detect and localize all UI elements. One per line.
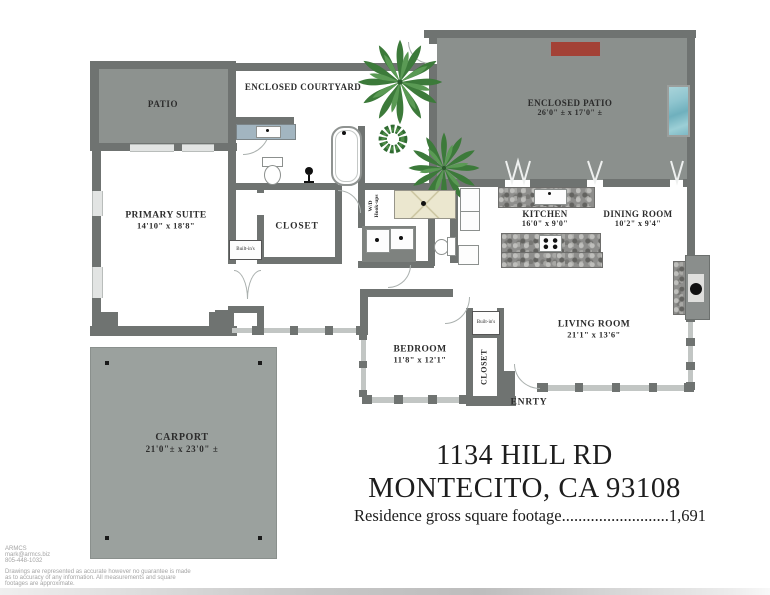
- window-mullion: [325, 326, 333, 335]
- window-mullion: [649, 383, 657, 392]
- window: [92, 191, 103, 216]
- built-ins-bedroom: Built-in's: [472, 311, 500, 335]
- room-name: DINING ROOM: [603, 209, 672, 219]
- window-sill: [363, 397, 467, 403]
- toilet: [447, 237, 456, 256]
- disclaimer-line-3: footages are approximate.: [5, 581, 191, 587]
- entry-label: ENRTY: [511, 398, 548, 409]
- laundry-label: W/D Hook-ups: [368, 195, 380, 218]
- room-dims: 21'1" x 13'6": [558, 331, 630, 341]
- window: [130, 144, 174, 152]
- room-dims: 14'10" x 18'8": [125, 222, 206, 232]
- room-label-primary-suite: PRIMARY SUITE 14'10" x 18'8": [125, 211, 206, 232]
- window-mullion: [428, 395, 437, 404]
- room-label-enclosed-courtyard: ENCLOSED COURTYARD: [245, 82, 361, 92]
- square-footage-line: Residence gross square footage..........…: [354, 506, 699, 526]
- bifold-door-icon: [670, 161, 684, 183]
- floor-lamp-icon: [305, 167, 313, 175]
- wall: [228, 61, 236, 264]
- room-label-patio: PATIO: [148, 99, 178, 109]
- wall: [90, 61, 236, 69]
- wall: [687, 183, 695, 259]
- door-arc: [234, 270, 248, 299]
- faucet-icon: [548, 192, 551, 195]
- built-ins-label: Built-in's: [477, 320, 495, 326]
- wall: [92, 312, 118, 327]
- shower-drain: [421, 201, 426, 206]
- vanity-sink: [256, 126, 281, 138]
- page-edge-shadow: [0, 588, 770, 595]
- wall: [360, 289, 368, 335]
- room-dims: 10'2" x 9'4": [603, 220, 672, 229]
- room-label-bedroom: BEDROOM 11'8" x 12'1": [394, 345, 447, 366]
- bbq-grill: [549, 40, 602, 58]
- room-label-primary-closet: CLOSET: [275, 222, 318, 233]
- bifold-door-icon: [505, 161, 531, 183]
- window-mullion: [686, 338, 695, 346]
- carport-post: [258, 361, 262, 365]
- room-name: ENCLOSED PATIO: [528, 98, 613, 108]
- kitchen-cabinet: [458, 245, 479, 265]
- window-mullion: [362, 395, 372, 404]
- toilet-bowl: [264, 165, 281, 185]
- address-line-2: MONTECITO, CA 93108: [352, 472, 697, 505]
- water-feature: [667, 85, 690, 137]
- address-line-1: 1134 HILL RD: [352, 440, 697, 472]
- built-ins-label: Built-in's: [236, 247, 254, 253]
- room-label-dining-room: DINING ROOM 10'2" x 9'4": [603, 209, 672, 229]
- window: [92, 267, 103, 298]
- stove: [539, 235, 562, 252]
- wall: [92, 143, 101, 334]
- shrub-plant-icon: [377, 123, 409, 155]
- bathtub-basin: [335, 130, 358, 182]
- wall: [232, 117, 294, 124]
- door-arc: [247, 270, 261, 299]
- window-mullion: [612, 383, 620, 392]
- door-arc: [514, 364, 540, 389]
- bifold-door-icon: [587, 161, 603, 183]
- window-mullion: [252, 326, 264, 335]
- wall: [424, 30, 696, 38]
- wall: [603, 179, 670, 187]
- room-dims: 21'0"± x 23'0" ±: [146, 444, 219, 454]
- room-label-carport: CARPORT 21'0"± x 23'0" ±: [146, 432, 219, 454]
- wall: [363, 289, 453, 297]
- carport-post: [258, 536, 262, 540]
- washer-knob: [375, 238, 379, 242]
- door-opening: [257, 193, 264, 215]
- window-mullion: [290, 326, 298, 335]
- window-mullion: [359, 361, 367, 368]
- wall: [232, 183, 338, 190]
- room-dims: 16'0" x 9'0": [522, 220, 568, 229]
- window-mullion: [686, 362, 695, 370]
- footage-label: Residence gross square footage: [354, 506, 562, 525]
- door-arc: [388, 265, 411, 288]
- window-mullion: [394, 395, 403, 404]
- built-ins-primary: Built-in's: [229, 240, 262, 260]
- kitchen-cabinet: [460, 211, 480, 231]
- room-dims: 11'8" x 12'1": [394, 356, 447, 366]
- window-sill: [688, 316, 693, 388]
- wall: [257, 257, 342, 264]
- wd-line2: Hook-ups: [374, 195, 380, 218]
- floor-plan: Built-in's Built-in's PATIO ENCLOSED COU…: [0, 0, 770, 595]
- room-label-enclosed-patio: ENCLOSED PATIO 26'0" ± x 17'0" ±: [528, 98, 613, 118]
- wall: [90, 61, 99, 149]
- footage-dots: ..........................: [562, 506, 669, 525]
- window-mullion: [359, 333, 367, 340]
- room-name: CARPORT: [146, 432, 219, 444]
- faucet-icon: [266, 129, 269, 132]
- footage-value: 1,691: [669, 506, 706, 525]
- firebox-icon: [690, 283, 702, 295]
- window-mullion: [575, 383, 583, 392]
- room-label-kitchen: KITCHEN 16'0" x 9'0": [522, 209, 568, 229]
- tub-faucet-icon: [342, 131, 346, 135]
- dryer-knob: [399, 236, 403, 240]
- room-dims: 26'0" ± x 17'0" ±: [528, 109, 613, 118]
- carport-post: [105, 361, 109, 365]
- window-mullion: [686, 382, 695, 390]
- kitchen-island-lower: [501, 252, 603, 268]
- palm-plant-icon: [356, 38, 444, 126]
- floor-lamp-base: [304, 181, 314, 183]
- room-label-living-room: LIVING ROOM 21'1" x 13'6": [558, 320, 630, 341]
- room-name: KITCHEN: [522, 209, 568, 219]
- address-block: 1134 HILL RD MONTECITO, CA 93108: [352, 440, 697, 505]
- refrigerator: [460, 188, 480, 212]
- carport-post: [105, 536, 109, 540]
- bathtub: [331, 126, 362, 186]
- window: [182, 144, 214, 152]
- footer-credits: ARMCS mark@armcs.biz 805-448-1032 Drawin…: [5, 546, 191, 587]
- wall: [530, 179, 587, 187]
- room-label-bedroom-closet: CLOSET: [481, 349, 490, 385]
